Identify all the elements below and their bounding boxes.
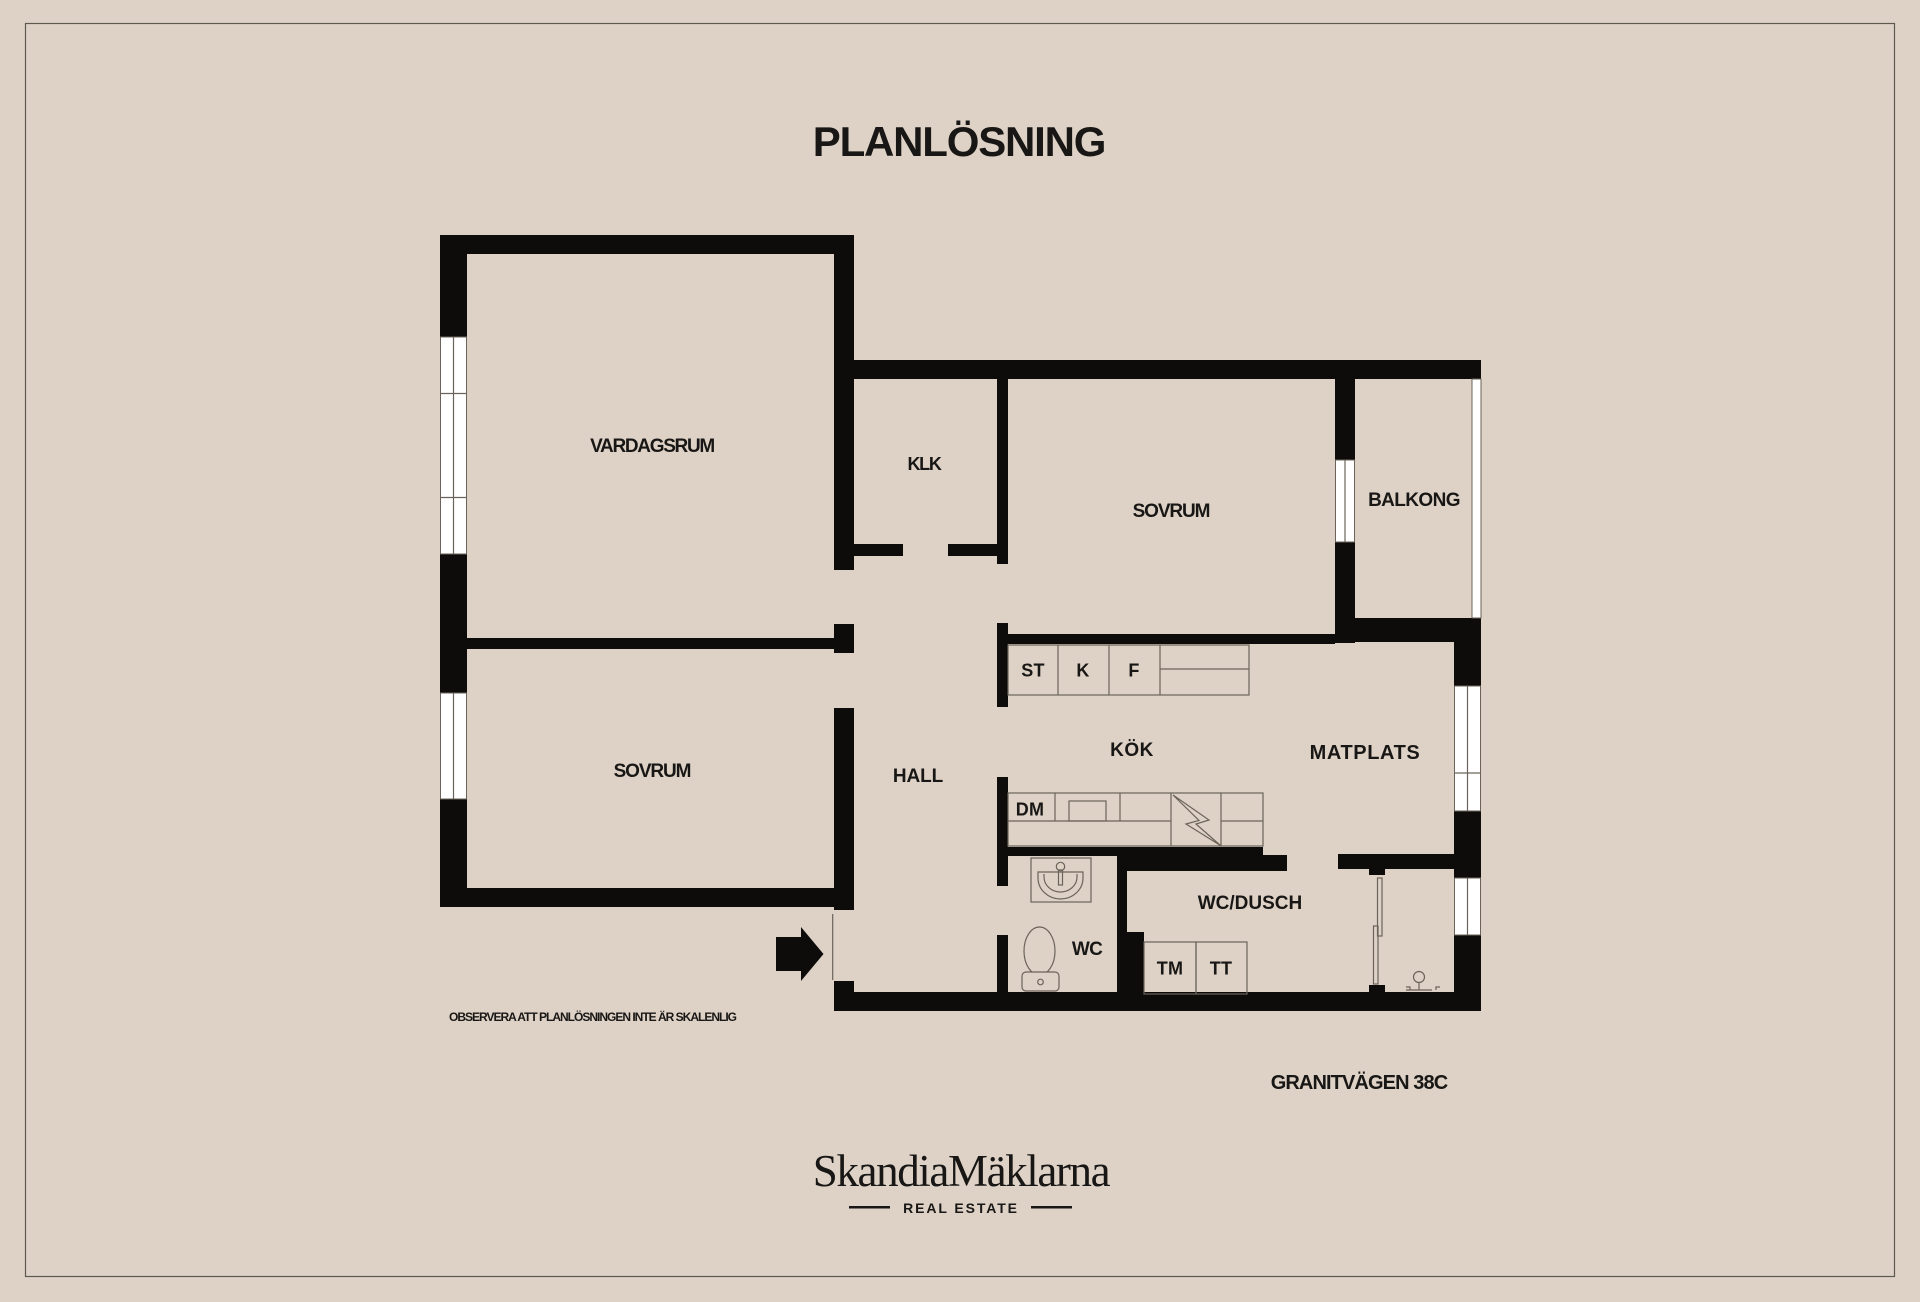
svg-text:KLK: KLK (907, 454, 941, 474)
svg-text:K: K (1076, 661, 1089, 681)
svg-text:KÖK: KÖK (1110, 740, 1154, 761)
svg-text:SkandiaMäklarna: SkandiaMäklarna (813, 1146, 1111, 1196)
svg-text:SOVRUM: SOVRUM (614, 761, 691, 782)
svg-text:TM: TM (1157, 959, 1184, 979)
svg-text:DM: DM (1016, 800, 1045, 820)
svg-text:GRANITVÄGEN 38C: GRANITVÄGEN 38C (1271, 1071, 1448, 1094)
svg-text:SOVRUM: SOVRUM (1133, 501, 1210, 522)
svg-text:TT: TT (1210, 959, 1233, 979)
svg-text:WC/DUSCH: WC/DUSCH (1198, 893, 1303, 914)
svg-text:ST: ST (1021, 661, 1045, 681)
svg-text:HALL: HALL (893, 766, 944, 787)
svg-text:MATPLATS: MATPLATS (1310, 742, 1421, 764)
svg-text:BALKONG: BALKONG (1368, 490, 1460, 511)
svg-text:PLANLÖSNING: PLANLÖSNING (813, 118, 1105, 165)
svg-text:REAL ESTATE: REAL ESTATE (903, 1200, 1019, 1216)
svg-text:VARDAGSRUM: VARDAGSRUM (590, 436, 714, 457)
svg-text:WC: WC (1072, 939, 1103, 960)
svg-text:OBSERVERA ATT PLANLÖSNINGEN IN: OBSERVERA ATT PLANLÖSNINGEN INTE ÄR SKAL… (449, 1009, 737, 1024)
svg-text:F: F (1128, 661, 1139, 681)
